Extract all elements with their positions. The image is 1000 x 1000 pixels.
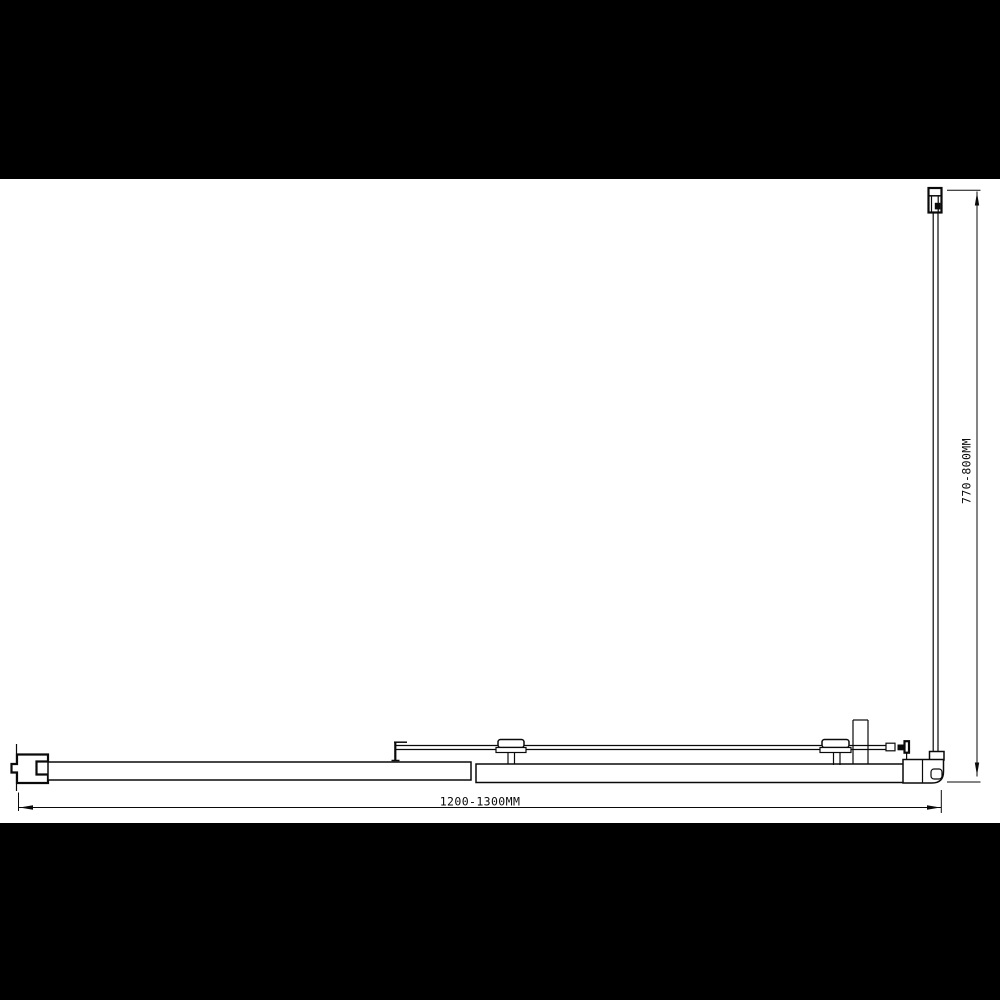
bar-glass-clamp-1 bbox=[496, 740, 526, 765]
corner-mount-bracket bbox=[853, 720, 868, 765]
side-glass-panel bbox=[929, 188, 945, 760]
screenshot-stage: 1200-1300MM 770-800MM bbox=[0, 0, 1000, 1000]
depth-dimension-label: 770-800MM bbox=[960, 438, 974, 504]
width-dimension: 1200-1300MM bbox=[19, 790, 942, 813]
depth-arrow-bottom bbox=[975, 763, 979, 776]
width-dimension-label: 1200-1300MM bbox=[440, 795, 521, 809]
support-bar bbox=[392, 742, 887, 761]
depth-dimension: 770-800MM bbox=[947, 190, 981, 782]
front-door-assembly bbox=[12, 720, 944, 791]
depth-arrow-top bbox=[975, 193, 979, 206]
glass-corner-fitting bbox=[930, 752, 945, 761]
bar-glass-clamp-2 bbox=[820, 740, 851, 766]
top-wall-bracket bbox=[929, 188, 942, 213]
width-arrow-left bbox=[20, 805, 34, 809]
shower-enclosure-plan-drawing: 1200-1300MM 770-800MM bbox=[0, 0, 1000, 1000]
wall-profile-left bbox=[12, 755, 49, 784]
bar-end-fitting bbox=[886, 741, 909, 759]
fixed-glass-panel bbox=[48, 762, 471, 780]
corner-post bbox=[903, 760, 944, 784]
width-arrow-right bbox=[927, 805, 940, 809]
sliding-glass-panel bbox=[476, 764, 907, 783]
